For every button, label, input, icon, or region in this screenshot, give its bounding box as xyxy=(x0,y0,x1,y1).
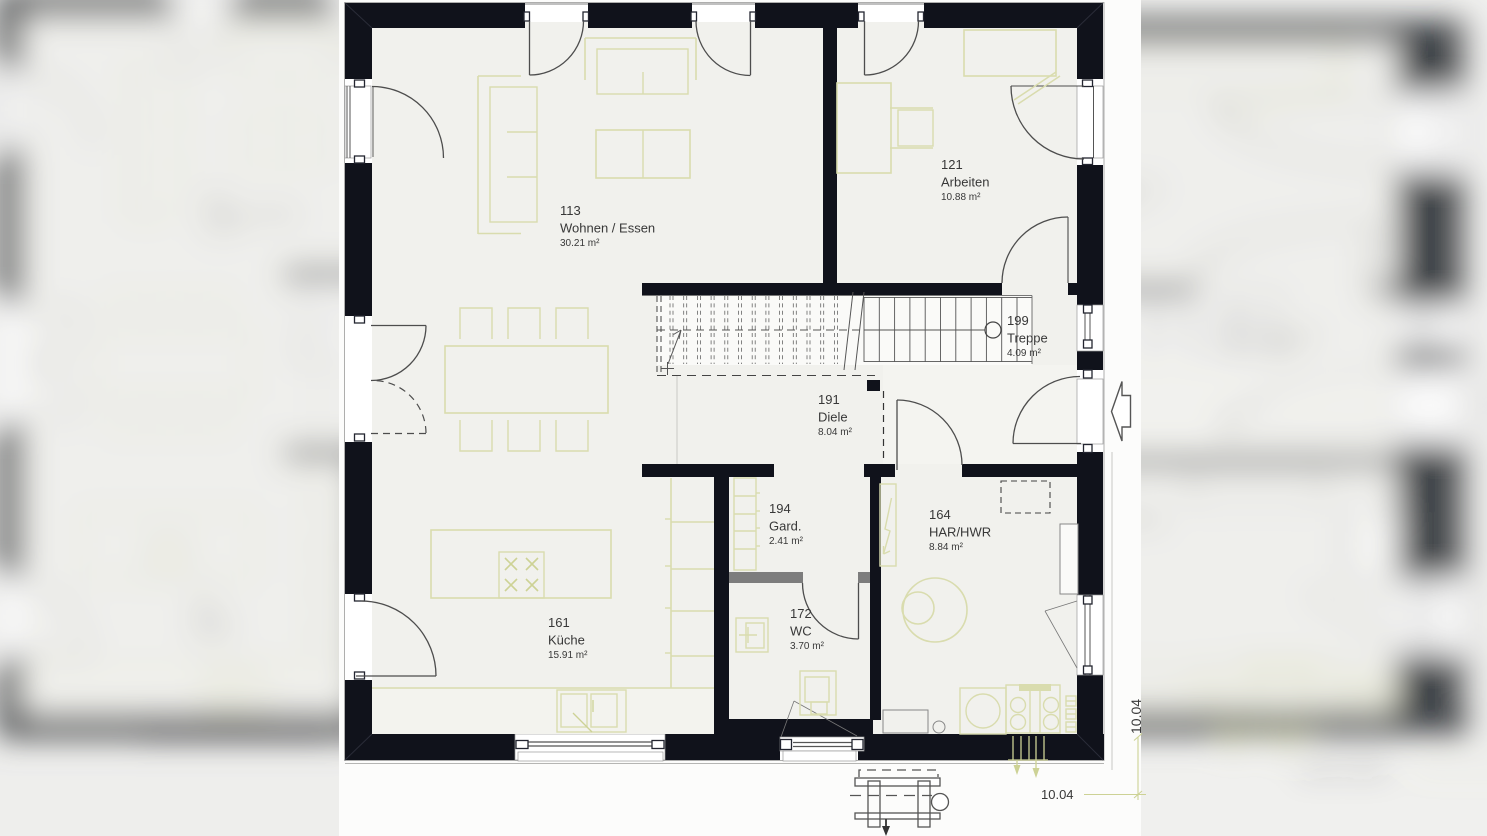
svg-text:2.41 m²: 2.41 m² xyxy=(769,536,804,547)
svg-text:10.04: 10.04 xyxy=(1128,699,1144,734)
svg-text:172: 172 xyxy=(790,606,812,621)
svg-text:194: 194 xyxy=(769,501,791,516)
svg-text:164: 164 xyxy=(929,507,951,522)
svg-text:191: 191 xyxy=(818,392,840,407)
svg-text:30.21 m²: 30.21 m² xyxy=(560,238,600,249)
svg-text:Küche: Küche xyxy=(548,633,585,648)
svg-text:3.70 m²: 3.70 m² xyxy=(790,641,825,652)
svg-text:8.84 m²: 8.84 m² xyxy=(929,542,964,553)
svg-text:10.04: 10.04 xyxy=(1041,787,1074,802)
svg-text:161: 161 xyxy=(548,615,570,630)
svg-text:199: 199 xyxy=(1007,313,1029,328)
svg-text:Treppe: Treppe xyxy=(1007,331,1048,346)
svg-text:113: 113 xyxy=(560,203,581,218)
svg-text:Wohnen / Essen: Wohnen / Essen xyxy=(560,221,655,236)
svg-text:Gard.: Gard. xyxy=(769,519,802,534)
svg-text:8.04 m²: 8.04 m² xyxy=(818,427,853,438)
svg-text:15.91 m²: 15.91 m² xyxy=(548,650,588,661)
svg-text:Diele: Diele xyxy=(818,410,848,425)
svg-text:10.88 m²: 10.88 m² xyxy=(941,192,981,203)
svg-text:Arbeiten: Arbeiten xyxy=(941,175,989,190)
svg-text:4.09 m²: 4.09 m² xyxy=(1007,348,1042,359)
svg-text:WC: WC xyxy=(790,624,812,639)
svg-text:121: 121 xyxy=(941,157,963,172)
svg-text:HAR/HWR: HAR/HWR xyxy=(929,525,991,540)
